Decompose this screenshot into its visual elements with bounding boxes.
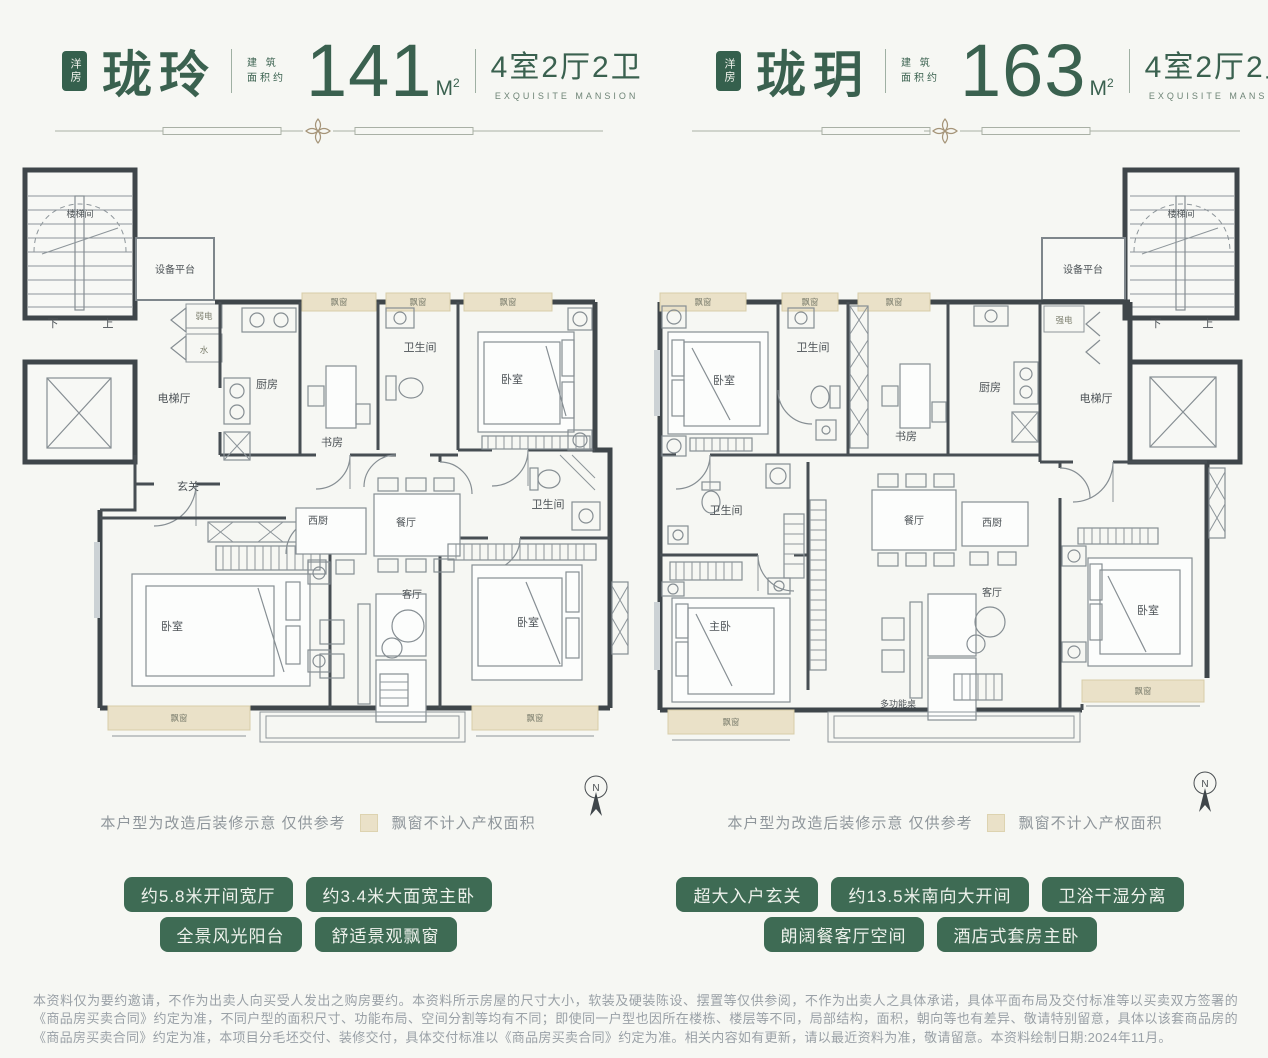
bay-label: 飘窗 — [499, 297, 516, 307]
study-furniture — [882, 364, 946, 428]
dining-label: 餐厅 — [396, 516, 416, 529]
bath2-label: 卫生间 — [710, 503, 743, 517]
divider — [885, 49, 886, 93]
unit-name: 珑玲 — [102, 35, 216, 107]
legend-note: 本户型为改造后装修示意 仅供参考 — [727, 812, 972, 833]
area-value-block: 163 M2 — [960, 39, 1114, 103]
stair-label: 楼梯间 — [1167, 208, 1194, 219]
bay-label: 飘窗 — [801, 297, 818, 307]
living-label: 客厅 — [402, 588, 422, 601]
layout-text: 4室2厅2卫 — [491, 42, 643, 86]
area-label-line1: 建 筑 — [901, 58, 933, 69]
bedroom3-furniture — [1062, 468, 1225, 666]
layout-block: 4室2厅2卫 EXQUISITE MANSION — [491, 42, 643, 101]
feature-tag: 酒店式套房主卧 — [937, 917, 1097, 952]
water-label: 水 — [200, 345, 209, 355]
living-label: 客厅 — [982, 586, 1002, 599]
area-value: 163 — [960, 39, 1086, 103]
study-label: 书房 — [321, 436, 343, 449]
balcony — [828, 712, 1080, 742]
up-label: 上 — [1203, 317, 1214, 330]
elevator — [1130, 362, 1240, 462]
equip-label: 设备平台 — [1063, 263, 1103, 276]
bay-label: 飘窗 — [1134, 686, 1151, 696]
elevator — [25, 362, 135, 462]
bedroom2-label: 卧室 — [161, 619, 183, 633]
down-label: 下 — [1151, 318, 1162, 330]
bath1-label: 卫生间 — [404, 340, 437, 354]
bath2-fixtures — [530, 455, 600, 530]
legend-bay-note: 飘窗不计入产权面积 — [1019, 812, 1163, 833]
unit-name: 珑玥 — [756, 35, 870, 107]
compass-right: N — [1190, 770, 1220, 818]
floor-plan-left: 楼梯间 下 上 设备平台 电梯厅 弱电 水 — [20, 150, 640, 770]
bay-label: 飘窗 — [722, 717, 739, 727]
study-furniture — [308, 366, 370, 428]
area-label: 建 筑面积约 — [901, 56, 945, 86]
area-unit-m: M — [435, 77, 453, 100]
area-value-block: 141 M2 — [306, 39, 460, 103]
divider — [1129, 49, 1130, 93]
legend-right: 本户型为改造后装修示意 仅供参考 飘窗不计入产权面积 — [645, 812, 1245, 833]
tags-left-row2: 全景风光阳台 舒适景观飘窗 — [8, 917, 608, 952]
dining-table — [374, 478, 460, 572]
legend-bay-note: 飘窗不计入产权面积 — [392, 812, 536, 833]
strong-elec-label: 强电 — [1055, 315, 1073, 325]
ornament-divider-left — [55, 115, 603, 147]
foyer-label: 玄关 — [177, 479, 199, 493]
tags-left-row1: 约5.8米开间宽厅 约3.4米大面宽主卧 — [8, 877, 608, 912]
stair-label: 楼梯间 — [66, 208, 93, 219]
bay-label: 飘窗 — [330, 297, 347, 307]
bath2-label: 卫生间 — [532, 497, 565, 511]
layout-subtext: EXQUISITE MANSION — [495, 91, 639, 101]
legend-note: 本户型为改造后装修示意 仅供参考 — [100, 812, 345, 833]
master-label: 主卧 — [709, 620, 731, 633]
header-right: 洋房 珑玥 建 筑面积约 163 M2 4室2厅2卫 EXQUISITE MAN… — [716, 32, 1268, 110]
bedroom1-label: 卧室 — [501, 372, 523, 386]
bay-label: 飘窗 — [409, 297, 426, 307]
tags-right-row2: 朗阔餐客厅空间 酒店式套房主卧 — [630, 917, 1230, 952]
down-label: 下 — [48, 318, 59, 330]
utility-boxes: 强电 — [1044, 306, 1100, 364]
living-furniture — [320, 594, 426, 722]
bedroom1-furniture — [478, 308, 592, 450]
divider — [231, 49, 232, 93]
area-label-line2: 面积约 — [901, 73, 940, 84]
bay-swatch — [987, 814, 1005, 832]
bedroom3-label: 卧室 — [1137, 603, 1159, 617]
tags-right-row1: 超大入户玄关 约13.5米南向大开间 卫浴干湿分离 — [630, 877, 1230, 912]
kitchen-label: 厨房 — [256, 378, 278, 391]
equipment-platform: 设备平台 — [1042, 238, 1125, 300]
feature-tag: 朗阔餐客厅空间 — [764, 917, 924, 952]
west-kitchen-island — [962, 502, 1028, 565]
multi-table-label: 多功能桌 — [880, 698, 916, 709]
area-unit: M2 — [1089, 76, 1113, 101]
floor-plan-right: 楼梯间 下 上 设备平台 电梯厅 强电 — [648, 150, 1268, 770]
legend-left: 本户型为改造后装修示意 仅供参考 飘窗不计入产权面积 — [18, 812, 618, 833]
kitchen-fixtures — [974, 306, 1038, 442]
area-label: 建 筑面积约 — [247, 56, 291, 86]
flower-ornament — [306, 119, 330, 143]
dining-label: 餐厅 — [904, 514, 924, 527]
stairwell: 楼梯间 — [1125, 170, 1237, 318]
unit-type-badge: 洋房 — [716, 51, 741, 91]
equip-label: 设备平台 — [155, 263, 195, 276]
area-unit-sup: 2 — [1107, 76, 1114, 90]
area-unit-m: M — [1089, 77, 1107, 100]
bay-label: 飘窗 — [170, 713, 187, 723]
elevator-hall-label: 电梯厅 — [158, 392, 191, 405]
study-label: 书房 — [895, 430, 917, 443]
north-arrow-icon — [1199, 788, 1211, 812]
unit-type-badge: 洋房 — [62, 51, 87, 91]
area-unit: M2 — [435, 76, 459, 101]
bay-label: 飘窗 — [694, 297, 711, 307]
feature-tag: 舒适景观飘窗 — [315, 917, 457, 952]
area-label-line1: 建 筑 — [247, 58, 279, 69]
feature-tag: 全景风光阳台 — [160, 917, 302, 952]
layout-block: 4室2厅2卫 EXQUISITE MANSION — [1145, 42, 1268, 101]
weak-elec-label: 弱电 — [195, 311, 213, 321]
area-unit-sup: 2 — [453, 76, 460, 90]
bay-label: 飘窗 — [526, 713, 543, 723]
bath1-fixtures — [386, 308, 423, 400]
feature-tag: 约13.5米南向大开间 — [831, 877, 1028, 912]
up-label: 上 — [103, 317, 114, 330]
bay-label: 飘窗 — [885, 297, 902, 307]
layout-subtext: EXQUISITE MANSION — [1149, 91, 1268, 101]
equipment-platform: 设备平台 — [136, 238, 214, 300]
duct-shaft — [850, 306, 868, 448]
stairwell: 楼梯间 — [25, 170, 135, 318]
feature-tag: 卫浴干湿分离 — [1042, 877, 1184, 912]
ornament-divider-right — [692, 115, 1240, 147]
bay-swatch — [360, 814, 378, 832]
balcony — [260, 712, 465, 742]
layout-text: 4室2厅2卫 — [1145, 42, 1268, 86]
bedroom3-label: 卧室 — [517, 615, 539, 629]
disclaimer-text: 本资料仅为要约邀请，不作为出卖人向买受人发出之购房要约。本资料所示房屋的尺寸大小… — [33, 992, 1238, 1047]
feature-tag: 约5.8米开间宽厅 — [124, 877, 293, 912]
kitchen-label: 厨房 — [979, 381, 1001, 394]
area-value: 141 — [306, 39, 432, 103]
west-kitchen-label: 西厨 — [982, 517, 1002, 529]
divider — [475, 49, 476, 93]
west-kitchen-label: 西厨 — [308, 515, 328, 527]
bath2-fixtures — [668, 464, 790, 544]
elevator-hall-label: 电梯厅 — [1080, 392, 1113, 405]
bedroom3-furniture — [448, 544, 628, 680]
bath1-label: 卫生间 — [797, 340, 830, 354]
header-left: 洋房 珑玲 建 筑面积约 141 M2 4室2厅2卫 EXQUISITE MAN… — [62, 32, 643, 110]
bedroom1-label: 卧室 — [713, 373, 735, 387]
feature-tag: 超大入户玄关 — [676, 877, 818, 912]
area-label-line2: 面积约 — [247, 73, 286, 84]
utility-boxes: 弱电 水 — [171, 304, 222, 362]
feature-tag: 约3.4米大面宽主卧 — [306, 877, 493, 912]
flower-ornament — [933, 119, 957, 143]
